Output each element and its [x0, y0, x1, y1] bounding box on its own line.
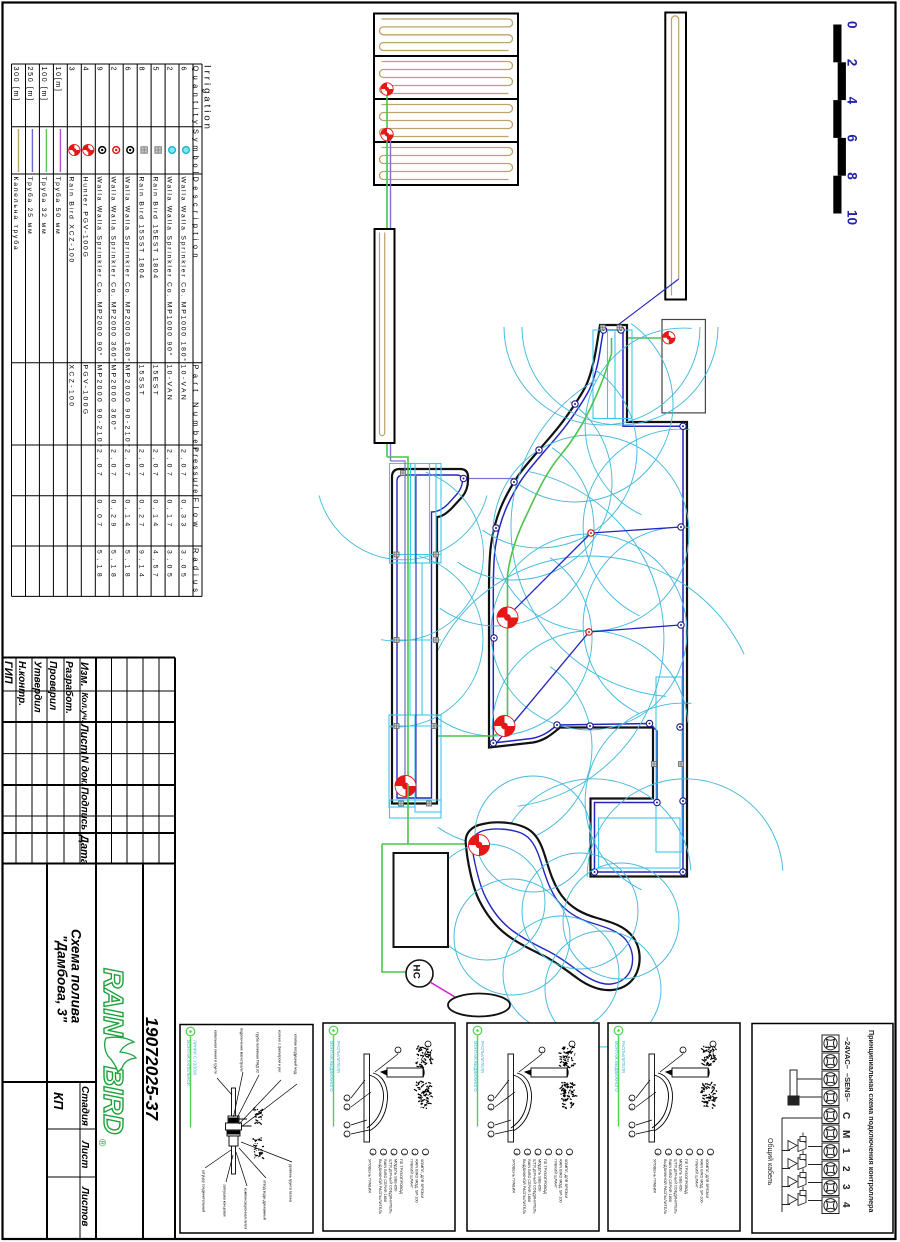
svg-text:0,27: 0,27	[138, 500, 145, 531]
svg-text:–SENS–: –SENS–	[843, 1073, 852, 1102]
svg-text:Rain Bird 15SST 1804: Rain Bird 15SST 1804	[138, 177, 145, 281]
svg-text:Общий кабель: Общий кабель	[766, 1138, 774, 1186]
svg-text:300 [m]: 300 [m]	[12, 67, 21, 102]
svg-text:КП: КП	[51, 1092, 66, 1110]
svg-text:Walla Walla Sprinkler Co. MP10: Walla Walla Sprinkler Co. MP1000 180°	[179, 177, 187, 363]
svg-text:4: 4	[840, 1202, 851, 1208]
svg-text:0,17: 0,17	[165, 500, 172, 531]
svg-text:ЛИНИИ С УЗЛОМ: ЛИНИИ С УЗЛОМ	[193, 1040, 198, 1075]
svg-text:0,14: 0,14	[152, 500, 159, 531]
svg-text:"Дамбова, 3": "Дамбова, 3"	[55, 935, 70, 1023]
svg-text:ШТУЦЕРНЫЙ СОЕДИНИТЕЛЬ: ШТУЦЕРНЫЙ СОЕДИНИТЕЛЬ	[533, 1159, 537, 1214]
svg-text:Труба 50 мм: Труба 50 мм	[54, 177, 62, 236]
svg-text:C: C	[840, 1112, 851, 1119]
svg-text:заглушка концевая: заглушка концевая	[223, 1184, 227, 1217]
svg-text:–24VAC–: –24VAC–	[843, 1037, 852, 1069]
svg-text:подключение магистрали: подключение магистрали	[240, 1028, 244, 1072]
svg-text:9,14: 9,14	[138, 550, 145, 581]
svg-text:ГИБКИЙ ШЛАНГ: ГИБКИЙ ШЛАНГ	[695, 1159, 699, 1188]
svg-text:2,07: 2,07	[110, 449, 117, 480]
svg-text:0: 0	[845, 21, 860, 29]
svg-text:RAIN: RAIN	[98, 968, 129, 1037]
svg-text:9: 9	[96, 67, 105, 73]
svg-text:2,07: 2,07	[165, 449, 172, 480]
svg-text:Капельна труба: Капельна труба	[12, 177, 20, 252]
svg-text:RAIN BIRD СЕРИЯ 1800: RAIN BIRD СЕРИЯ 1800	[383, 1159, 387, 1202]
svg-text:5,18: 5,18	[96, 550, 103, 581]
svg-text:Symbol: Symbol	[192, 129, 201, 177]
svg-text:2: 2	[845, 59, 860, 67]
svg-text:6: 6	[179, 67, 188, 73]
svg-text:Стадия: Стадия	[79, 1086, 90, 1126]
svg-text:Изм.: Изм.	[78, 662, 90, 687]
svg-text:колено с фильтром и рег.: колено с фильтром и рег.	[278, 1030, 282, 1073]
svg-text:ШТУЦЕРНЫЙ СОЕДИНИТЕЛЬ: ШТУЦЕРНЫЙ СОЕДИНИТЕЛЬ	[674, 1159, 678, 1214]
svg-text:6: 6	[124, 67, 133, 73]
svg-text:труба поливная ПНД 32: труба поливная ПНД 32	[256, 1032, 260, 1073]
svg-text:2,07: 2,07	[152, 449, 159, 480]
svg-text:19072025-37: 19072025-37	[142, 1017, 162, 1121]
svg-text:Проверил: Проверил	[47, 661, 58, 711]
svg-text:КОМПЛ. ДЛЯ ВРЕЗКИ: КОМПЛ. ДЛЯ ВРЕЗКИ	[705, 1159, 709, 1198]
svg-text:5,18: 5,18	[110, 550, 117, 581]
svg-text:МОДЕЛЬ SBE-050: МОДЕЛЬ SBE-050	[394, 1159, 398, 1191]
svg-text:Лист: Лист	[78, 723, 90, 754]
svg-text:Утвердил: Утвердил	[32, 661, 43, 713]
svg-text:КОМПЛ. ДЛЯ ВРЕЗКИ: КОМПЛ. ДЛЯ ВРЕЗКИ	[420, 1159, 424, 1198]
svg-text:ШТУЦЕРНЫЙ СОЕДИНИТЕЛЬ: ШТУЦЕРНЫЙ СОЕДИНИТЕЛЬ	[389, 1159, 393, 1214]
svg-text:компенсационная петля: компенсационная петля	[244, 1188, 248, 1229]
svg-text:Rain Bird 15EST 1804: Rain Bird 15EST 1804	[152, 177, 159, 281]
svg-text:МОНТАЖ КАПЕЛЬНОЙ: МОНТАЖ КАПЕЛЬНОЙ	[186, 1040, 191, 1086]
svg-text:RAIN BIRD СЕРИЯ 1800: RAIN BIRD СЕРИЯ 1800	[668, 1159, 672, 1202]
svg-text:Труба 32 мм: Труба 32 мм	[40, 177, 48, 236]
svg-text:ВЫДВИЖНОЙ РАСПЫЛИТЕЛЬ: ВЫДВИЖНОЙ РАСПЫЛИТЕЛЬ	[378, 1159, 382, 1215]
svg-text:РАСПЫЛИТЕЛЯ: РАСПЫЛИТЕЛЯ	[336, 1041, 341, 1073]
svg-text:10-VAN: 10-VAN	[165, 365, 172, 403]
svg-text:РАСПЫЛИТЕЛЯ: РАСПЫЛИТЕЛЯ	[480, 1041, 485, 1073]
svg-text:4: 4	[82, 67, 91, 73]
svg-text:100 [m]: 100 [m]	[40, 67, 49, 102]
svg-text:2: 2	[110, 67, 119, 73]
svg-text:Схема полива: Схема полива	[69, 929, 84, 1024]
svg-text:8: 8	[138, 67, 147, 73]
svg-text:ПЕ ТРУБОПРОВОД: ПЕ ТРУБОПРОВОД	[399, 1159, 403, 1194]
svg-text:4,57: 4,57	[152, 550, 159, 581]
svg-text:Walla Walla Sprinkler Co. MP20: Walla Walla Sprinkler Co. MP2000 180°	[124, 177, 132, 363]
svg-text:3,05: 3,05	[165, 550, 172, 581]
svg-text:5,18: 5,18	[124, 550, 131, 581]
svg-text:250 [m]: 250 [m]	[26, 67, 35, 102]
svg-text:15SST: 15SST	[138, 365, 145, 398]
svg-text:Кол.уч.: Кол.уч.	[80, 693, 90, 723]
svg-text:Rain Bird XCZ-100: Rain Bird XCZ-100	[68, 177, 75, 265]
svg-text:4: 4	[845, 97, 860, 105]
svg-text:КОМПЛ. ДЛЯ ВРЕЗКИ: КОМПЛ. ДЛЯ ВРЕЗКИ	[564, 1159, 568, 1198]
svg-text:3,05: 3,05	[179, 550, 186, 581]
svg-text:RAIN BIRD МОД. SP-100: RAIN BIRD МОД. SP-100	[415, 1159, 419, 1203]
svg-text:Flow: Flow	[192, 498, 201, 532]
svg-text:2,07: 2,07	[124, 449, 131, 480]
svg-text:ГИП: ГИП	[2, 661, 14, 685]
svg-text:1: 1	[840, 1148, 851, 1154]
svg-text:N док.: N док.	[79, 756, 90, 786]
svg-text:Walla Walla Sprinkler Co. MP20: Walla Walla Sprinkler Co. MP2000 360°	[110, 177, 118, 363]
svg-text:2,07: 2,07	[179, 449, 186, 480]
svg-text:MP2000 90-210°: MP2000 90-210°	[124, 365, 132, 450]
svg-text:Дата: Дата	[78, 834, 90, 865]
svg-text:Irrigation: Irrigation	[202, 65, 213, 132]
svg-text:PGV-100G: PGV-100G	[82, 365, 89, 417]
svg-text:штуцер соединительный: штуцер соединительный	[202, 1170, 206, 1212]
svg-text:0,07: 0,07	[96, 500, 103, 531]
svg-text:BIRD: BIRD	[98, 1066, 129, 1134]
svg-text:0,33: 0,33	[179, 500, 186, 531]
svg-text:ГИБКИЙ ШЛАНГ: ГИБКИЙ ШЛАНГ	[554, 1159, 558, 1188]
svg-text:RAIN BIRD СЕРИЯ 1800: RAIN BIRD СЕРИЯ 1800	[527, 1159, 531, 1202]
svg-text:RAIN BIRD МОД. SP-100: RAIN BIRD МОД. SP-100	[700, 1159, 704, 1203]
svg-text:Принципиальная схема подключен: Принципиальная схема подключения контрол…	[867, 1030, 876, 1213]
svg-text:15EST: 15EST	[152, 365, 159, 398]
svg-text:M: M	[840, 1130, 851, 1138]
svg-text:ПЕ ТРУБОПРОВОД: ПЕ ТРУБОПРОВОД	[543, 1159, 547, 1194]
svg-text:0,14: 0,14	[124, 500, 131, 531]
svg-text:МОНТАЖ ВЫДВИЖНОГО: МОНТАЖ ВЫДВИЖНОГО	[473, 1041, 478, 1092]
svg-text:3: 3	[68, 67, 77, 73]
svg-text:Н.контр.: Н.контр.	[16, 661, 27, 706]
svg-text:XCZ-100: XCZ-100	[68, 365, 75, 409]
svg-text:Part Number: Part Number	[192, 365, 201, 455]
svg-text:МОДЕЛЬ SBE-050: МОДЕЛЬ SBE-050	[538, 1159, 542, 1191]
svg-text:клапан воздушный мод.: клапан воздушный мод.	[294, 1034, 298, 1075]
svg-text:Walla Walla Sprinkler Co. MP10: Walla Walla Sprinkler Co. MP1000 90°	[165, 177, 173, 358]
svg-text:3: 3	[840, 1184, 851, 1190]
svg-text:Walla Walla Sprinkler Co. MP20: Walla Walla Sprinkler Co. MP2000 90°	[96, 177, 104, 358]
svg-text:6: 6	[845, 134, 860, 142]
svg-text:НС: НС	[411, 965, 422, 980]
svg-text:УРОВЕНЬ ГРАВИЯ: УРОВЕНЬ ГРАВИЯ	[653, 1159, 657, 1193]
svg-text:8: 8	[845, 172, 860, 180]
svg-text:Разработ.: Разработ.	[63, 661, 75, 714]
svg-text:RAIN BIRD МОД. SP-100: RAIN BIRD МОД. SP-100	[559, 1159, 563, 1203]
svg-text:ВЫДВИЖНОЙ РАСПЫЛИТЕЛЬ: ВЫДВИЖНОЙ РАСПЫЛИТЕЛЬ	[522, 1159, 526, 1215]
svg-text:10: 10	[845, 210, 860, 225]
svg-text:10[m]: 10[m]	[54, 67, 63, 93]
svg-text:0,29: 0,29	[110, 500, 117, 531]
svg-text:Description: Description	[192, 177, 201, 262]
svg-text:Hunter PGV-100G: Hunter PGV-100G	[82, 177, 89, 259]
svg-text:MP2000 90-210°: MP2000 90-210°	[96, 365, 104, 450]
svg-text:Листов: Листов	[79, 1186, 90, 1226]
svg-text:2,07: 2,07	[96, 449, 103, 480]
svg-text:ВЫДВИЖНОЙ РАСПЫЛИТЕЛЬ: ВЫДВИЖНОЙ РАСПЫЛИТЕЛЬ	[663, 1159, 667, 1215]
svg-text:MP2000 360°: MP2000 360°	[110, 365, 118, 433]
svg-text:уровень грунта газона: уровень грунта газона	[289, 1164, 293, 1203]
svg-text:Подпись: Подпись	[79, 787, 90, 830]
svg-text:Radius: Radius	[192, 548, 201, 596]
svg-text:Лист: Лист	[79, 1140, 90, 1169]
svg-text:ГИБКИЙ ШЛАНГ: ГИБКИЙ ШЛАНГ	[410, 1159, 414, 1188]
svg-text:отвод воды дренажный: отвод воды дренажный	[263, 1180, 267, 1220]
svg-text:5: 5	[152, 67, 161, 73]
svg-text:®: ®	[96, 1139, 107, 1147]
svg-text:ПЕ ТРУБОПРОВОД: ПЕ ТРУБОПРОВОД	[684, 1159, 688, 1194]
svg-text:УРОВЕНЬ ГРАВИЯ: УРОВЕНЬ ГРАВИЯ	[368, 1159, 372, 1193]
svg-text:Труба 25 мм: Труба 25 мм	[26, 177, 34, 236]
svg-text:МОНТАЖ ВЫДВИЖНОГО: МОНТАЖ ВЫДВИЖНОГО	[329, 1041, 334, 1092]
svg-text:МОНТАЖ ВЫДВИЖНОГО: МОНТАЖ ВЫДВИЖНОГО	[614, 1041, 619, 1092]
svg-text:УРОВЕНЬ ГРАВИЯ: УРОВЕНЬ ГРАВИЯ	[512, 1159, 516, 1193]
svg-text:МОДЕЛЬ SBE-050: МОДЕЛЬ SBE-050	[679, 1159, 683, 1191]
svg-text:Pressure: Pressure	[192, 447, 201, 496]
svg-text:2: 2	[840, 1166, 851, 1172]
svg-text:Quantity: Quantity	[192, 66, 201, 129]
svg-text:10-VAN: 10-VAN	[179, 365, 186, 403]
svg-text:капельная линия в грунте: капельная линия в грунте	[214, 1030, 218, 1074]
svg-text:2,07: 2,07	[138, 449, 145, 480]
svg-text:РАСПЫЛИТЕЛЯ: РАСПЫЛИТЕЛЯ	[621, 1041, 626, 1073]
svg-text:2: 2	[165, 67, 174, 73]
